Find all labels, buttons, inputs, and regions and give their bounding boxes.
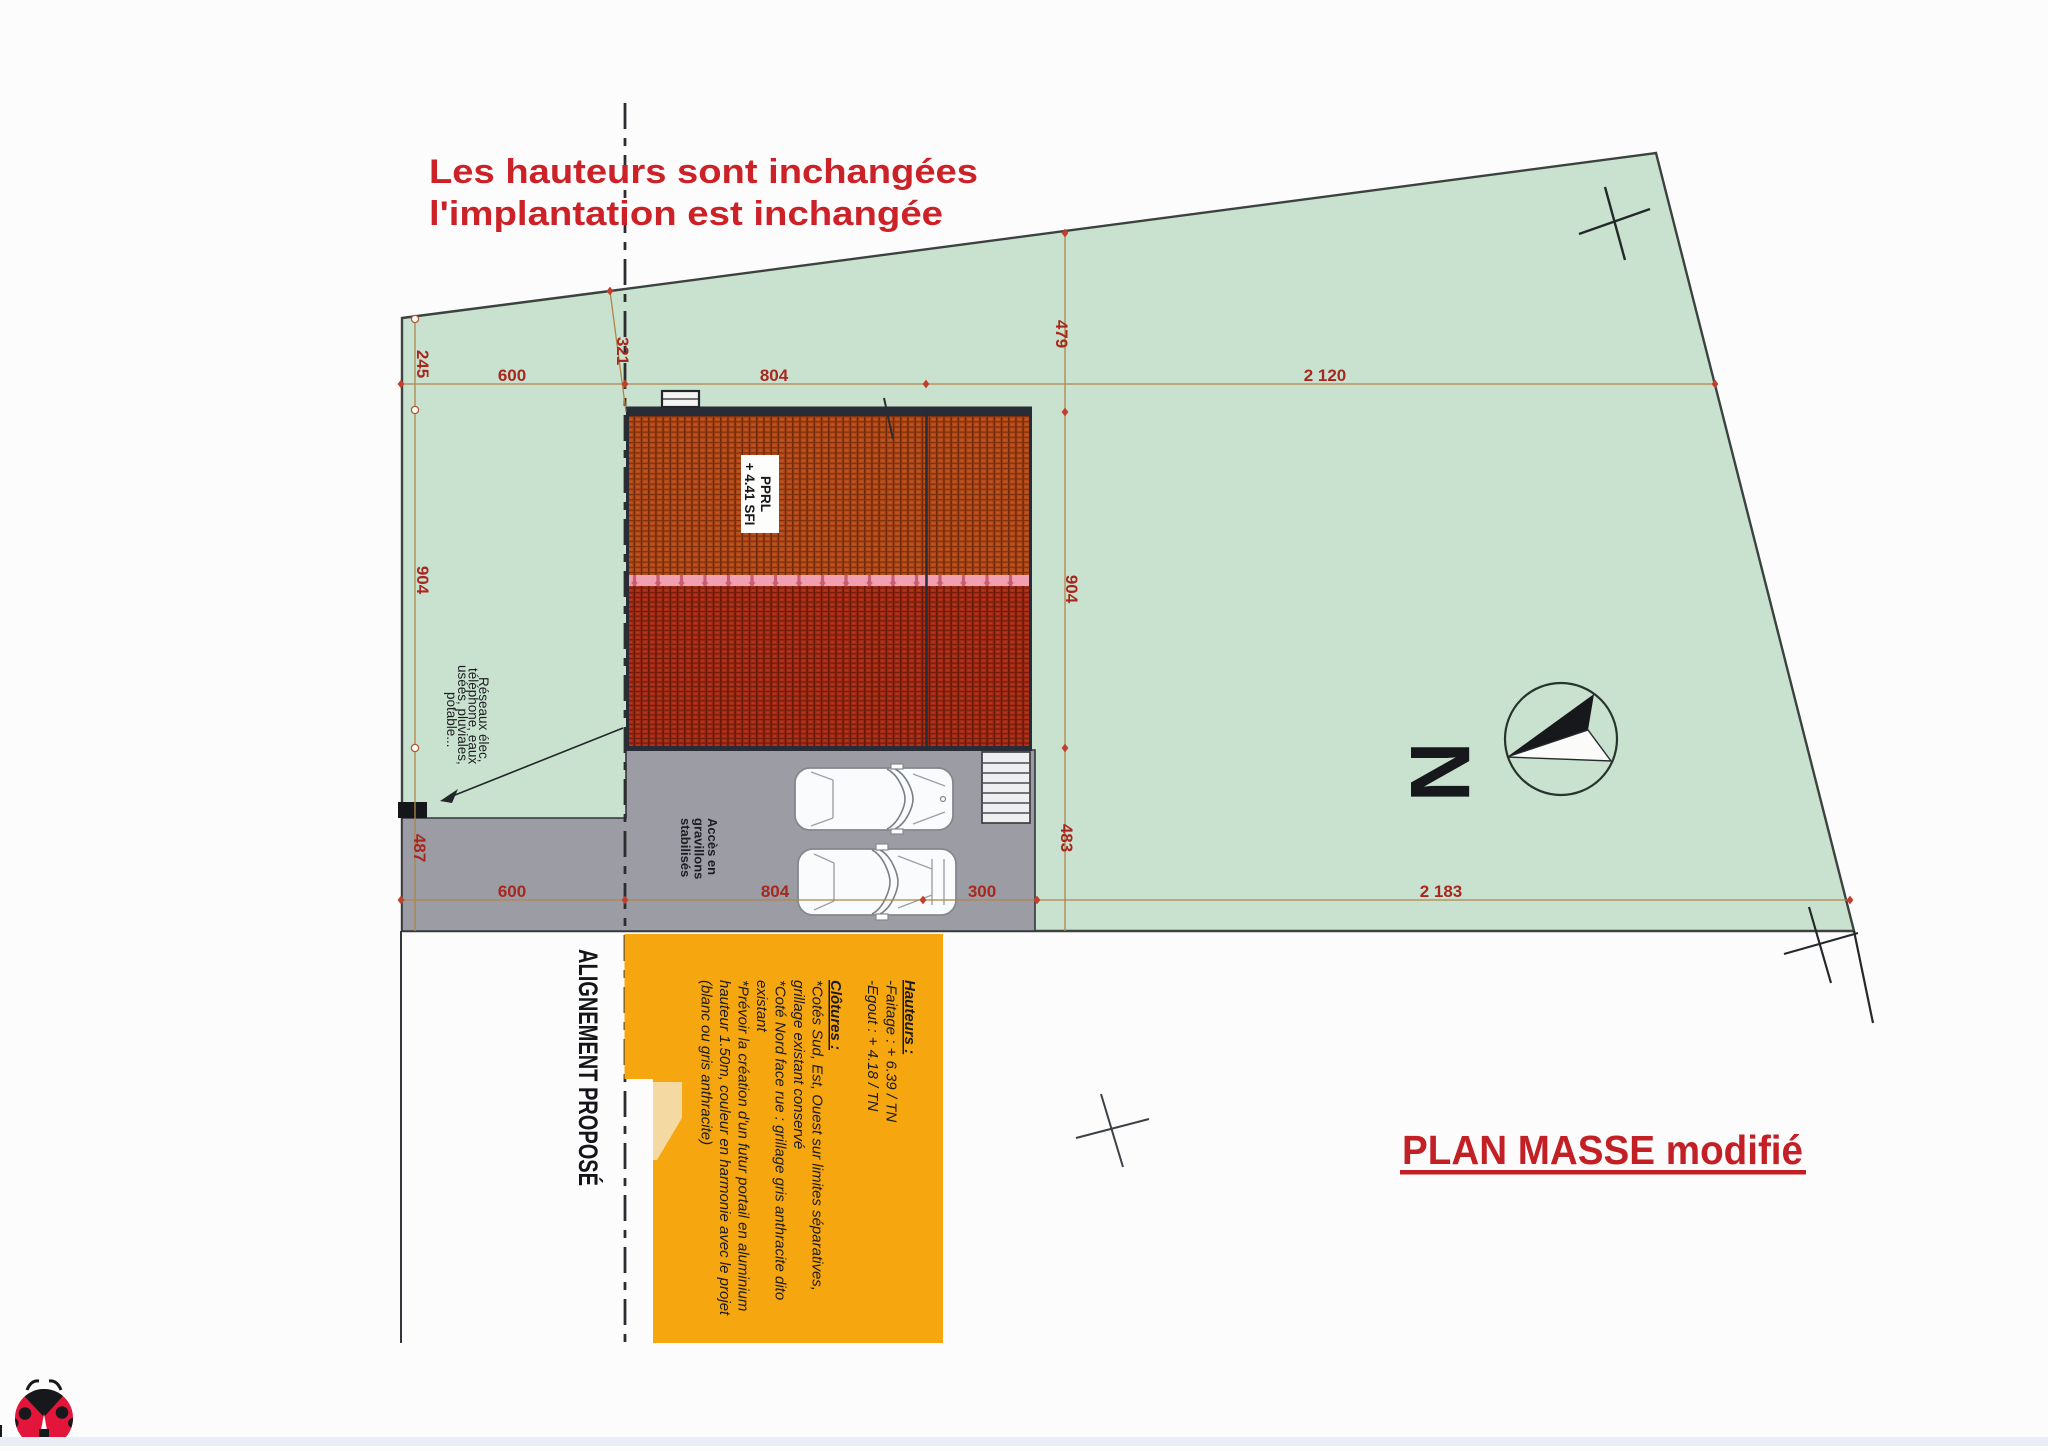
svg-text:potable...: potable... — [444, 692, 459, 748]
svg-text:stabilisés: stabilisés — [678, 818, 693, 877]
svg-text:-Egout : + 4.18 / TN: -Egout : + 4.18 / TN — [864, 980, 881, 1111]
svg-text:(blanc ou gris anthracite): (blanc ou gris anthracite) — [698, 980, 715, 1145]
svg-text:479: 479 — [1052, 320, 1071, 348]
svg-text:*Prévoir la création d'un futu: *Prévoir la création d'un futur portail … — [735, 980, 752, 1311]
svg-text:grillage existant conservé: grillage existant conservé — [790, 980, 807, 1149]
svg-text:hauteur 1.50m, couleur en harm: hauteur 1.50m, couleur en harmonie avec … — [716, 980, 733, 1316]
svg-text:-Faitage : + 6.39 / TN: -Faitage : + 6.39 / TN — [883, 980, 900, 1122]
svg-text:l'implantation est inchangée: l'implantation est inchangée — [429, 195, 943, 233]
svg-text:ALIGNEMENT PROPOSÉ: ALIGNEMENT PROPOSÉ — [573, 949, 604, 1186]
svg-text:*Coté Nord face rue : grillage: *Coté Nord face rue : grillage gris anth… — [772, 980, 789, 1300]
svg-text:321: 321 — [613, 337, 632, 365]
svg-text:600: 600 — [498, 366, 526, 385]
svg-text:300: 300 — [968, 882, 996, 901]
svg-text:PLAN MASSE modifié: PLAN MASSE modifié — [1402, 1127, 1803, 1173]
svg-text:483: 483 — [1057, 824, 1076, 852]
svg-text:600: 600 — [498, 882, 526, 901]
svg-text:2 120: 2 120 — [1304, 366, 1347, 385]
svg-text:487: 487 — [410, 834, 429, 862]
svg-text:existant: existant — [753, 980, 770, 1033]
svg-text:2 183: 2 183 — [1420, 882, 1463, 901]
svg-text:804: 804 — [760, 366, 789, 385]
svg-text:Les hauteurs sont inchangées: Les hauteurs sont inchangées — [429, 153, 978, 191]
svg-text:N: N — [1393, 742, 1487, 803]
svg-text:904: 904 — [413, 566, 432, 595]
svg-text:804: 804 — [761, 882, 790, 901]
svg-text:*Cotés Sud, Est, Ouest sur lim: *Cotés Sud, Est, Ouest sur limites sépar… — [809, 980, 826, 1291]
svg-text:PPRL: PPRL — [758, 476, 773, 512]
svg-text:245: 245 — [413, 350, 432, 378]
svg-text:904: 904 — [1062, 575, 1081, 604]
svg-text:Clôtures :: Clôtures : — [827, 980, 844, 1050]
svg-text:+ 4.41 SFI: + 4.41 SFI — [742, 463, 757, 526]
svg-text:Hauteurs :: Hauteurs : — [901, 980, 918, 1054]
